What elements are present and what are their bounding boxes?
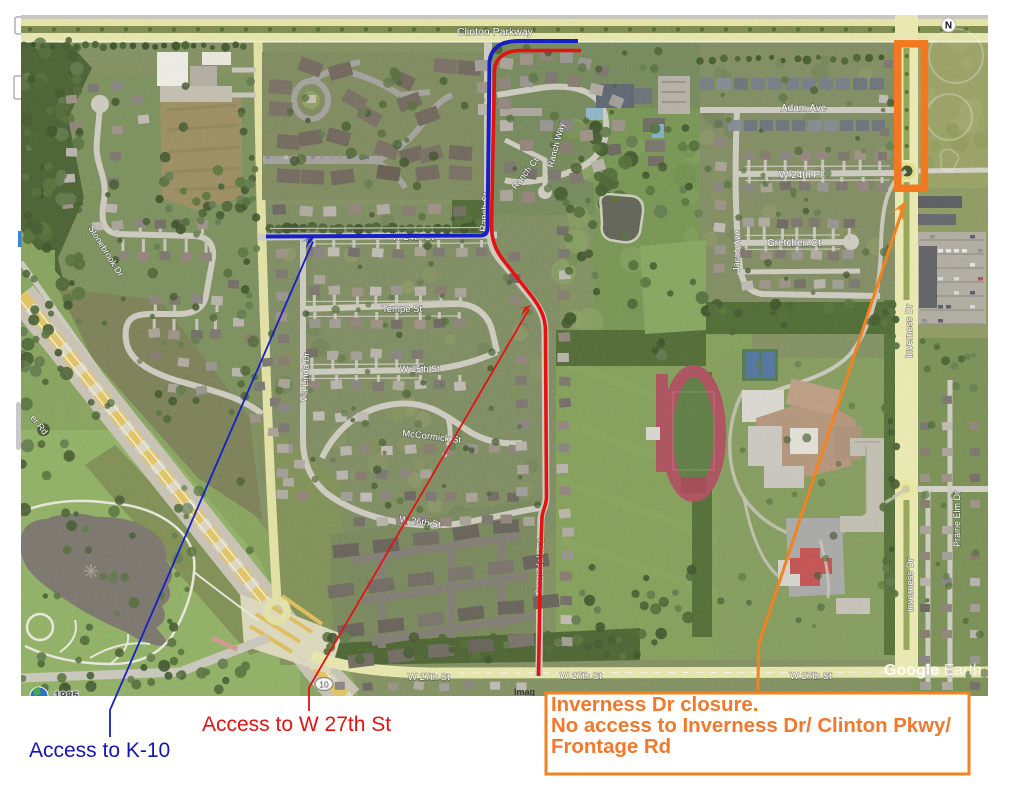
- svg-text:N: N: [945, 21, 952, 32]
- svg-text:Adam Ave: Adam Ave: [781, 103, 827, 114]
- svg-text:Inverness Dr: Inverness Dr: [904, 304, 915, 358]
- svg-text:Jacob Ave: Jacob Ave: [731, 230, 742, 272]
- svg-text:W 27th St: W 27th St: [408, 672, 450, 683]
- svg-text:W 24th Pl: W 24th Pl: [779, 170, 822, 181]
- svg-text:No access to Inverness Dr/ Cli: No access to Inverness Dr/ Clinton Pkwy/: [551, 715, 951, 737]
- svg-text:W 27th St: W 27th St: [790, 671, 832, 682]
- svg-text:Inverness Dr: Inverness Dr: [905, 558, 916, 612]
- svg-text:W 25th St: W 25th St: [400, 364, 440, 374]
- svg-text:Clinton Parkway: Clinton Parkway: [457, 26, 534, 38]
- svg-text:Inverness Dr closure.: Inverness Dr closure.: [551, 694, 758, 716]
- svg-text:Google Earth: Google Earth: [884, 662, 982, 679]
- svg-text:Tempe St: Tempe St: [382, 304, 422, 315]
- svg-text:Imag: Imag: [514, 687, 535, 697]
- svg-text:Frontage Rd: Frontage Rd: [551, 736, 671, 758]
- svg-text:Gretchen Ct: Gretchen Ct: [767, 238, 821, 249]
- svg-text:W 27th St: W 27th St: [560, 671, 602, 682]
- svg-text:Access to W 27th St: Access to W 27th St: [202, 713, 391, 736]
- svg-text:Prairie Elm Dr: Prairie Elm Dr: [952, 491, 962, 547]
- svg-text:Access to K-10: Access to K-10: [29, 739, 170, 762]
- svg-text:10: 10: [319, 680, 329, 690]
